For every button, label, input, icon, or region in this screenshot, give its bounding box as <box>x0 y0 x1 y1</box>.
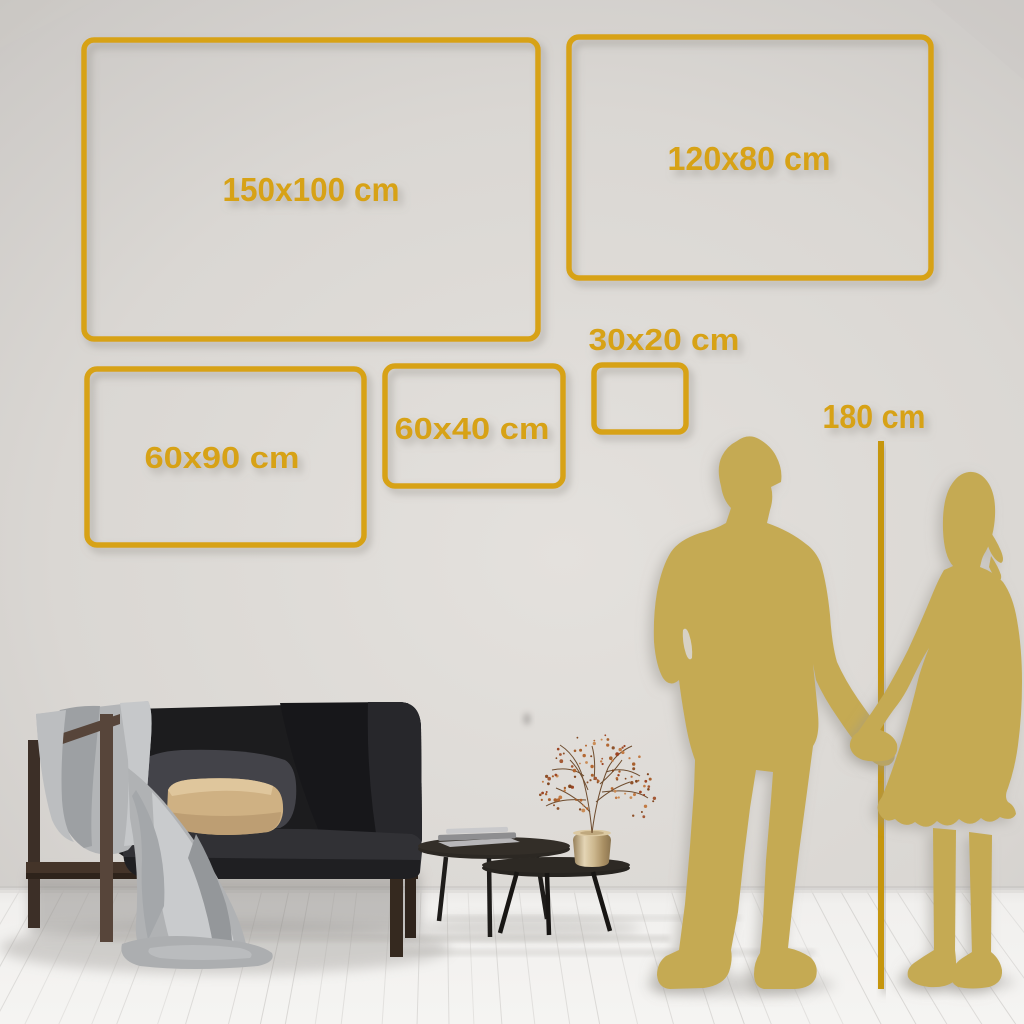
svg-text:60x40 cm: 60x40 cm <box>395 411 550 446</box>
svg-text:120x80 cm: 120x80 cm <box>668 140 831 177</box>
svg-text:30x20 cm: 30x20 cm <box>589 322 740 357</box>
svg-text:150x100 cm: 150x100 cm <box>223 171 400 208</box>
svg-text:60x90 cm: 60x90 cm <box>145 440 300 475</box>
svg-text:180 cm: 180 cm <box>823 398 926 435</box>
